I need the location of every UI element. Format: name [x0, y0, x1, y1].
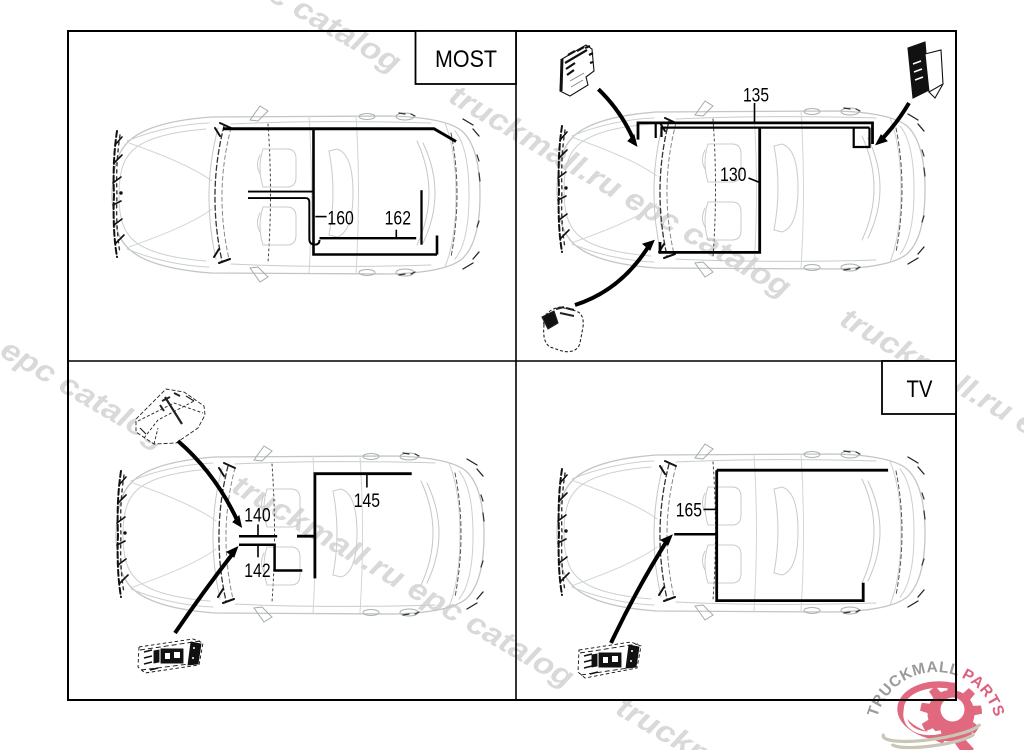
svg-text:TV: TV [907, 376, 934, 403]
svg-text:162: 162 [385, 208, 411, 230]
svg-text:160: 160 [327, 208, 354, 230]
svg-text:MOST: MOST [435, 46, 497, 73]
svg-text:135: 135 [743, 85, 769, 107]
svg-text:140: 140 [244, 505, 270, 527]
svg-text:165: 165 [676, 500, 702, 522]
svg-text:130: 130 [720, 164, 747, 186]
svg-text:145: 145 [354, 490, 380, 512]
svg-text:142: 142 [244, 560, 270, 582]
